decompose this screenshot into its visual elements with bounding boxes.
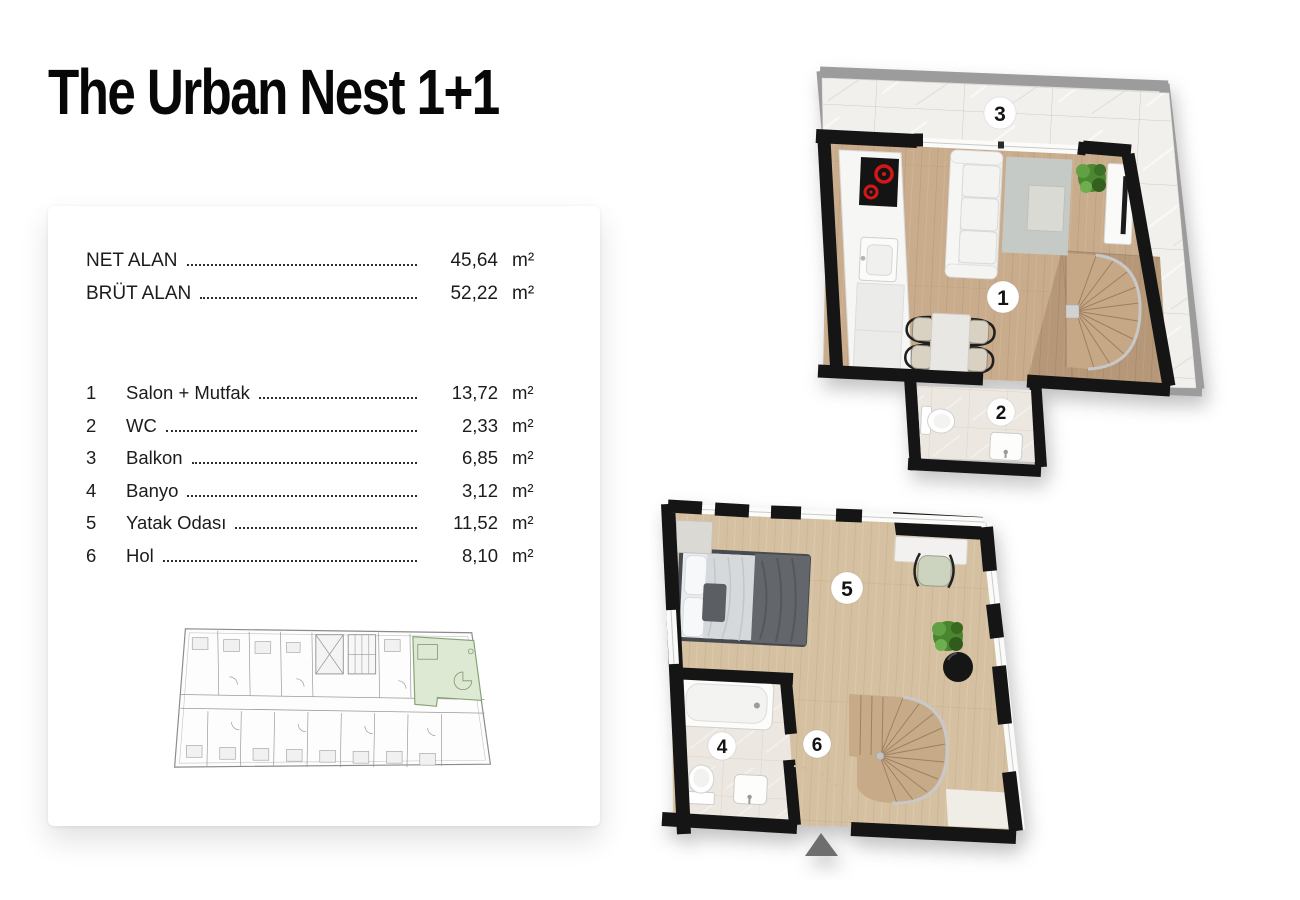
upper-floor-plan: 3 1 2 [816, 71, 1202, 471]
page: The Urban Nest 1+1 NET ALAN 45,64 m² BRÜ… [0, 0, 1300, 900]
room-marker-3: 3 [984, 97, 1016, 129]
svg-text:1: 1 [997, 287, 1009, 310]
room-marker-6: 6 [803, 730, 831, 758]
room-marker-4: 4 [708, 732, 736, 760]
room-row: 5 Yatak Odası 11,52 m² [86, 512, 558, 545]
building-key-plan [170, 620, 495, 772]
room-row: 6 Hol 8,10 m² [86, 545, 558, 578]
leader-dots [187, 490, 417, 497]
summary-unit: m² [498, 250, 558, 272]
svg-text:6: 6 [812, 735, 823, 756]
room-area-unit: m² [498, 447, 558, 469]
summary-row: NET ALAN 45,64 m² [86, 250, 558, 283]
floor-plans-canvas: 3 1 2 [650, 50, 1230, 880]
spiral-staircase [1066, 253, 1140, 369]
room-area-value: 11,52 [426, 512, 498, 534]
leader-dots [235, 522, 417, 529]
plant-icon [1076, 164, 1106, 193]
bathtub [679, 677, 774, 730]
lower-floor-plan: 5 4 6 [662, 504, 1020, 856]
leader-dots [166, 425, 417, 432]
room-area-value: 13,72 [426, 382, 498, 404]
nightstand [675, 520, 713, 554]
summary-value: 45,64 [426, 250, 498, 272]
summary-label: BRÜT ALAN [86, 283, 191, 305]
sofa [945, 150, 1003, 279]
room-row: 2 WC 2,33 m² [86, 415, 558, 448]
leader-dots [163, 555, 417, 562]
svg-text:3: 3 [994, 103, 1006, 126]
round-table [943, 652, 973, 682]
svg-text:4: 4 [717, 737, 728, 758]
summary-list: NET ALAN 45,64 m² BRÜT ALAN 52,22 m² [86, 250, 558, 316]
room-label: WC [126, 415, 157, 437]
room-number: 6 [86, 545, 126, 567]
room-area-value: 2,33 [426, 415, 498, 437]
svg-text:5: 5 [841, 578, 853, 601]
spiral-staircase [849, 694, 947, 803]
kitchen-sink [859, 237, 898, 282]
summary-unit: m² [498, 283, 558, 305]
room-marker-2: 2 [987, 398, 1015, 426]
room-area-unit: m² [498, 480, 558, 502]
summary-label: NET ALAN [86, 250, 178, 272]
room-row: 3 Balkon 6,85 m² [86, 447, 558, 480]
wc-sink [989, 432, 1022, 461]
room-area-unit: m² [498, 382, 558, 404]
room-label: Balkon [126, 447, 183, 469]
bed [675, 548, 811, 647]
room-row: 4 Banyo 3,12 m² [86, 480, 558, 513]
room-number: 2 [86, 415, 126, 437]
entrance-arrow-icon [805, 833, 838, 856]
coffee-table [1027, 185, 1065, 232]
room-area-value: 3,12 [426, 480, 498, 502]
room-marker-5: 5 [831, 572, 863, 604]
room-area-unit: m² [498, 512, 558, 534]
room-number: 5 [86, 512, 126, 534]
leader-dots [200, 292, 417, 299]
info-card: NET ALAN 45,64 m² BRÜT ALAN 52,22 m² 1 S… [48, 206, 600, 826]
leader-dots [192, 457, 417, 464]
room-label: Salon + Mutfak [126, 382, 250, 404]
plant-icon [932, 621, 963, 651]
room-list: 1 Salon + Mutfak 13,72 m² 2 WC 2,33 m² 3… [86, 382, 558, 577]
page-title: The Urban Nest 1+1 [48, 60, 499, 124]
leader-dots [259, 392, 417, 399]
room-number: 1 [86, 382, 126, 404]
room-area-unit: m² [498, 415, 558, 437]
room-label: Banyo [126, 480, 178, 502]
cooktop [859, 157, 899, 207]
bathroom-sink [733, 774, 767, 805]
room-area-unit: m² [498, 545, 558, 567]
key-plan-highlight [413, 637, 482, 707]
leader-dots [187, 259, 417, 266]
summary-row: BRÜT ALAN 52,22 m² [86, 283, 558, 316]
room-label: Yatak Odası [126, 512, 226, 534]
room-number: 4 [86, 480, 126, 502]
toilet [687, 764, 716, 804]
room-label: Hol [126, 545, 154, 567]
room-marker-1: 1 [987, 281, 1019, 313]
svg-text:2: 2 [996, 403, 1007, 424]
room-number: 3 [86, 447, 126, 469]
summary-value: 52,22 [426, 283, 498, 305]
room-row: 1 Salon + Mutfak 13,72 m² [86, 382, 558, 415]
room-area-value: 6,85 [426, 447, 498, 469]
room-area-value: 8,10 [426, 545, 498, 567]
